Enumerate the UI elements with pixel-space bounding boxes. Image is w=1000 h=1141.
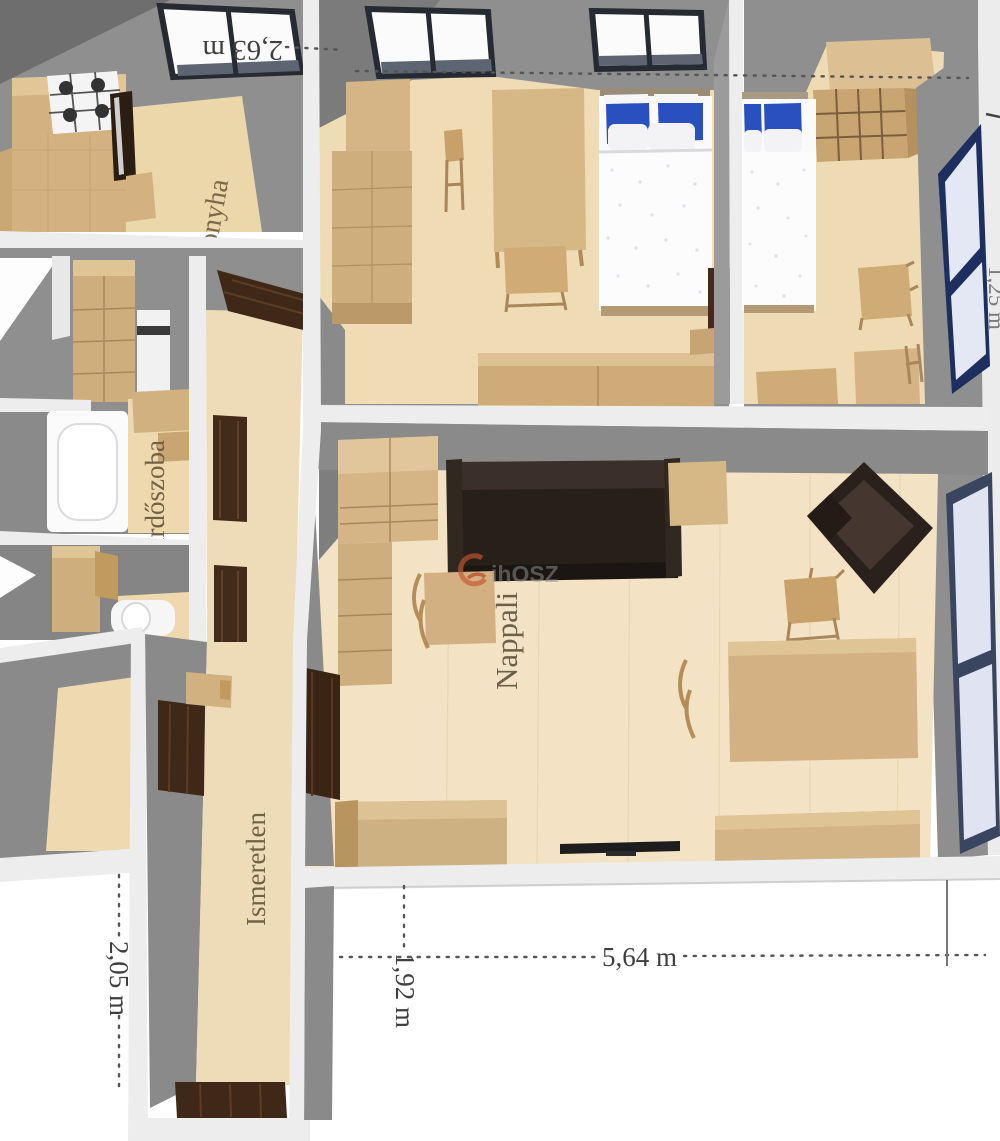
svg-text:Ismeretlen: Ismeretlen <box>241 812 271 926</box>
svg-text:1,92 m: 1,92 m <box>390 953 420 1028</box>
svg-text:2,05 m: 2,05 m <box>104 941 134 1016</box>
svg-text:5,64 m: 5,64 m <box>602 942 677 972</box>
svg-text:ihOSZ: ihOSZ <box>491 561 559 587</box>
svg-text:2,63 m: 2,63 m <box>202 34 283 66</box>
svg-text:1,25 m: 1,25 m <box>984 266 1000 330</box>
svg-text:Nappali: Nappali <box>489 591 524 690</box>
